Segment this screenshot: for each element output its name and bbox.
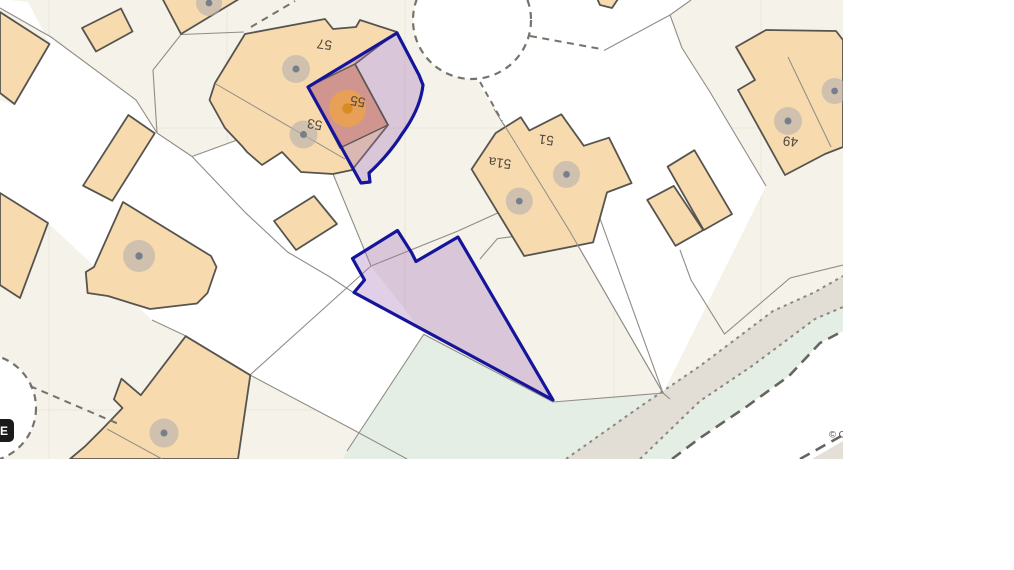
svg-text:51: 51	[538, 132, 555, 149]
svg-text:51a: 51a	[487, 154, 512, 172]
svg-text:57: 57	[316, 36, 333, 53]
svg-text:55: 55	[349, 93, 366, 110]
svg-text:E: E	[0, 424, 8, 438]
svg-text:53: 53	[306, 116, 323, 133]
svg-text:49: 49	[782, 133, 799, 150]
svg-text:© Cr: © Cr	[829, 430, 843, 441]
